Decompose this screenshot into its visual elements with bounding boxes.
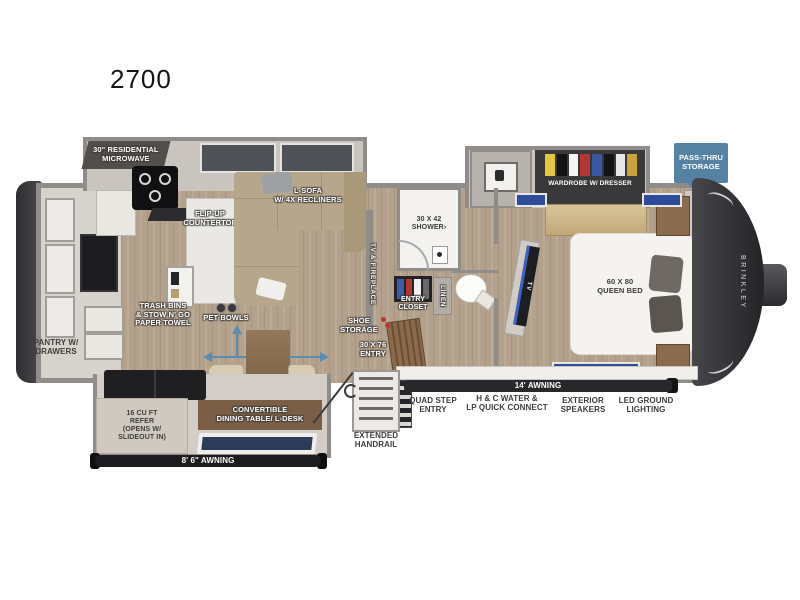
convertible-dining-desk: CONVERTIBLEDINING TABLE/ L-DESK [198,400,322,430]
linen-cabinet: LINEN [433,277,452,315]
entry-closet-label: ENTRYCLOSET [392,296,434,312]
feature-label-speakers: EXTERIORSPEAKERS [552,396,614,414]
slideout-window [280,143,354,173]
slide-arrow-icon [232,325,242,334]
refrigerator-label: 16 CU FTREFER (OPENS w/SLIDEOUT IN) [118,410,166,442]
bedroom-rug [642,193,682,207]
shoe-storage-label: SHOESTORAGE [332,317,386,334]
extended-handrail-label: EXTENDEDHANDRAIL [346,431,406,449]
slide-arrow-icon [203,352,212,362]
pantry-cabinet [45,296,75,338]
microwave-label: 30" RESIDENTIALMICROWAVE [93,146,158,163]
pet-bowl-icon [227,303,237,313]
l-sofa-label: L-SOFAw/ 4x RECLINERS [270,187,346,204]
pass-thru-storage-badge: PASS-THRUSTORAGE [674,143,728,183]
bedroom-dresser [545,204,647,236]
bathroom-wall [452,270,498,273]
bathroom-wall [494,188,498,244]
feature-label-quad-step: QUAD STEPENTRY [404,396,462,414]
entry-door-label: 30 X 76ENTRY [346,341,400,358]
microwave-label-plate: 30" RESIDENTIALMICROWAVE [82,141,171,169]
wardrobe-clothes-icon [545,154,637,176]
pantry-cabinet [45,244,75,294]
floorplan-canvas: 2700 30" RESIDENTIALMICROWAVE WARDROBE w… [0,0,800,600]
front-cap: BRINKLEY [692,178,764,386]
cap-accent-line [704,189,735,213]
slide-arrow-icon [236,333,238,357]
main-awning-rail: 14' AWNING [404,380,672,392]
slideout-window [197,433,317,454]
bedroom-rug [515,193,547,207]
entry-stairs [352,370,400,432]
pantry-cabinet [45,198,75,242]
shower-pedestal-icon [432,246,448,264]
queen-bed-label: 60 x 80QUEEN BED [575,278,665,295]
refrigerator: 16 CU FTREFER (OPENS w/SLIDEOUT IN) [96,398,188,454]
wall-bottom-rear [36,378,94,383]
pet-bowl-icon [216,303,226,313]
cap-accent-line [704,353,735,377]
linen-label: LINEN [439,285,446,307]
main-awning-label: 14' AWNING [515,381,562,390]
pantry-drawers [84,306,124,360]
pass-thru-storage-label: PASS-THRUSTORAGE [679,154,723,171]
feature-label-water-lp: H & C WATER &LP QUICK CONNECT [462,394,552,412]
vanity-faucet-icon [495,170,504,181]
trash-bins-label: TRASH BINS& STOW N' GOPAPER TOWEL [128,302,198,328]
kitchen-counter-rear [96,190,136,236]
convertible-dining-desk-label: CONVERTIBLEDINING TABLE/ L-DESK [217,406,304,423]
slide-arrow-icon [320,352,329,362]
handrail-hook-icon [344,384,358,398]
refrigerator-lids [104,370,206,400]
brand-name: BRINKLEY [738,250,746,314]
rear-awning-label: 8' 6" AWNING [182,456,235,465]
bed-pillow [648,295,683,334]
wardrobe-label: WARDROBE w/ DRESSER [536,180,644,187]
slideout-window [200,143,276,173]
shower-label: 30 x 42SHOWER› [400,216,458,232]
pantry-label: PANTRY w/DRAWERS [30,338,82,356]
feature-label-led: LED GROUNDLIGHTING [612,396,680,414]
body-skirt [396,366,698,380]
rear-tv [80,234,118,292]
wall-top-rear [36,183,86,188]
rear-awning-rail: 8' 6" AWNING [95,455,321,467]
tv-fireplace-label: TV & FIREPLACE [360,222,376,326]
range-cooktop [132,166,178,210]
pet-bowls-label: PET BOWLS [196,314,256,323]
floorplan-model-number: 2700 [110,64,172,95]
bedroom-tv-label: TV [524,281,532,292]
